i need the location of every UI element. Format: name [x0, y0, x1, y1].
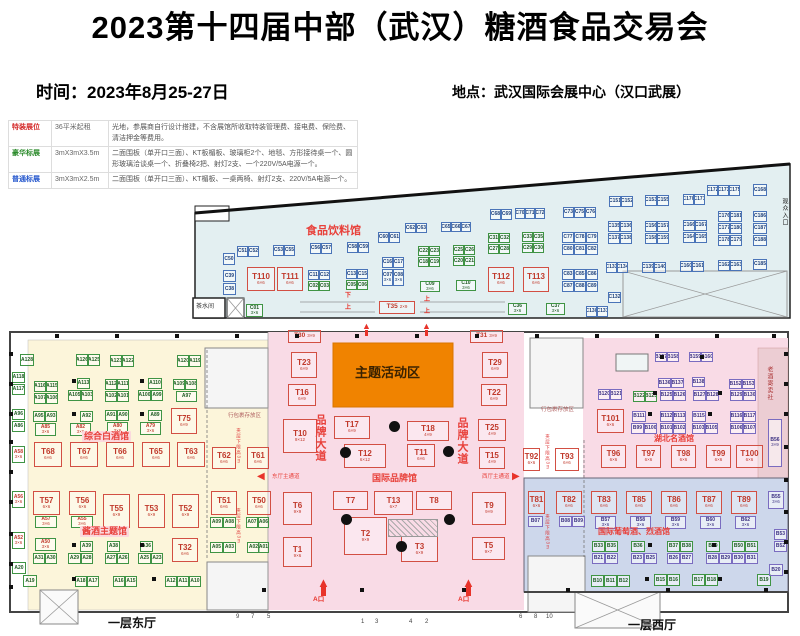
booth-id: C03: [320, 284, 329, 289]
booth-id: C65: [441, 225, 450, 230]
booth-C05: C05: [346, 280, 357, 290]
booth-size: 3×6: [395, 278, 403, 283]
booth-A102: A102: [105, 391, 117, 402]
booth-id: A15: [126, 579, 135, 584]
booth-A91: A91: [105, 410, 117, 421]
booth-id: C89: [587, 284, 596, 289]
zone: [616, 354, 648, 371]
booth-id: C85: [575, 272, 584, 277]
booth-id: A116: [34, 384, 46, 389]
booth-B35: B35: [605, 541, 618, 552]
pillar: [262, 588, 266, 592]
column-pillar: [443, 446, 454, 457]
pillar: [9, 440, 13, 444]
booth-C23: C23: [429, 246, 440, 256]
booth-A113: A113: [77, 378, 90, 389]
booth-id: C56: [311, 246, 320, 251]
booth-C173: C173: [718, 185, 729, 196]
booth-C138: C138: [620, 233, 632, 244]
booth-T97: T976×6: [636, 445, 661, 468]
pillar: [9, 470, 13, 474]
booth-T67: T676×6: [70, 442, 98, 467]
booth-id: C162: [718, 263, 730, 268]
booth-id: A90: [118, 413, 127, 418]
booth-id: B51: [747, 544, 756, 549]
booth-B102: B102: [673, 423, 686, 434]
booth-C165: C165: [695, 232, 707, 243]
booth-C69: C69: [501, 209, 512, 220]
booth-A122: A122: [122, 355, 134, 367]
booth-id: A103: [81, 393, 93, 398]
booth-C19: C19: [429, 257, 440, 267]
plan-label: 老酒寄卖社: [766, 366, 772, 401]
booth-A107: A107: [34, 393, 46, 404]
booth-C136: C136: [620, 221, 632, 232]
booth-B56: B563×9: [768, 419, 782, 467]
booth-id: C71: [525, 211, 534, 216]
booth-A95: A95: [33, 411, 45, 422]
booth-size: 6×6: [181, 552, 189, 557]
booth-id: A110: [149, 381, 161, 386]
column-pillar: [389, 421, 400, 432]
booth-size: 3×6: [15, 541, 23, 546]
pillar: [152, 577, 156, 581]
booth-id: C82: [587, 247, 596, 252]
booth-B101: B101: [660, 423, 673, 434]
pillar: [645, 577, 649, 581]
booth-id: C38: [225, 287, 234, 292]
booth-id: C73: [564, 210, 573, 215]
booth-id: C175: [729, 188, 740, 193]
booth-id: C05: [347, 283, 356, 288]
booth-B152: B152: [729, 379, 742, 389]
booth-T66: T666×6: [106, 442, 134, 467]
booth-B117: B117: [743, 411, 756, 422]
booth-id: C173: [718, 188, 729, 193]
booth-B62: B623×6: [735, 516, 756, 529]
booth-C58: C58: [347, 242, 358, 253]
booth-A57: A573×6: [35, 516, 57, 528]
booth-id: C19: [430, 260, 439, 265]
booth-id: A95: [34, 414, 43, 419]
booth-A100: A100: [138, 390, 151, 401]
booth-C185: C185: [753, 259, 767, 270]
booth-id: C77: [563, 235, 572, 240]
booth-A106: A106: [46, 393, 58, 404]
booth-id: C57: [322, 246, 331, 251]
booth-T96: T966×6: [601, 445, 626, 468]
booth-id: B10: [593, 579, 602, 584]
booth-C76: C76: [585, 207, 596, 218]
booth-size: 3×9: [771, 443, 779, 448]
zone: [205, 348, 268, 408]
booth-id: C22: [419, 249, 428, 254]
booth-T85: T856×6: [626, 491, 652, 514]
booth-id: A125: [88, 358, 100, 363]
pillar: [140, 543, 144, 547]
booth-size: 6×6: [497, 281, 505, 286]
booth-A86: A86: [12, 421, 25, 432]
booth-size: 3×6: [251, 311, 259, 316]
booth-id: C158: [645, 236, 657, 241]
booth-id: A03: [225, 545, 234, 550]
pillar: [9, 382, 13, 386]
booth-C86: C86: [586, 269, 598, 280]
booth-size: 6×6: [187, 456, 195, 461]
booth-id: C186: [754, 214, 766, 219]
booth-id: B121: [610, 392, 622, 397]
booth-id: C157: [657, 224, 669, 229]
booth-B121: B121: [610, 389, 622, 400]
booth-id: C28: [500, 247, 509, 252]
booth-T62: T626×6: [212, 447, 236, 469]
pillar: [784, 540, 788, 544]
booth-T11: T116×6: [407, 444, 435, 467]
booth-id: A100: [139, 393, 151, 398]
booth-id: C177: [718, 226, 730, 231]
booth-id: A10: [190, 579, 199, 584]
pillar: [140, 379, 144, 383]
booth-C163: C163: [730, 260, 742, 271]
booth-size: 6×9: [180, 423, 188, 428]
booth-id: C176: [718, 214, 730, 219]
booth-size: 3×6: [772, 500, 780, 505]
booth-id: C23: [430, 249, 439, 254]
booth-id: C178: [718, 238, 730, 243]
booth-B105: B105: [705, 423, 718, 434]
plan-label: 食品饮料馆: [306, 226, 361, 237]
booth-C32: C32: [499, 233, 510, 243]
booth-B29: B29: [719, 553, 732, 564]
booth-C07: C073×6: [382, 269, 393, 286]
booth-C159: C159: [657, 233, 669, 244]
booth-id: C76: [586, 210, 595, 215]
pillar: [772, 334, 776, 338]
booth-C62: C62: [405, 223, 416, 233]
plan-label: 10: [546, 614, 553, 620]
booth-id: C18: [419, 260, 428, 265]
booth-id: A23: [152, 556, 161, 561]
booth-size: 6×12: [360, 458, 370, 463]
booth-id: B35: [607, 544, 616, 549]
booth-size: 3×6: [707, 523, 715, 528]
booth-C135: C135: [608, 221, 620, 232]
plan-label: A口: [313, 597, 324, 604]
booth-id: C67: [461, 225, 470, 230]
booth-id: A105: [69, 393, 81, 398]
booth-B129: B129: [730, 390, 743, 401]
booth-B37: B37: [667, 541, 680, 552]
booth-size: 6×9: [113, 513, 121, 518]
booth-id: T35: [387, 304, 398, 311]
booth-size: 6×6: [152, 456, 160, 461]
plan-label: 茶水间: [196, 304, 214, 310]
booth-B137: B137: [671, 378, 684, 388]
booth-A38: A38: [107, 541, 120, 552]
booth-id: C33: [523, 235, 532, 240]
booth-size: 6×6: [645, 458, 653, 463]
booth-C52: C52: [248, 246, 259, 257]
plan-label: 综合白酒馆: [82, 431, 131, 442]
plan-label: 夹层下限高3m: [236, 428, 241, 464]
direction-arrow-stem: [321, 587, 325, 596]
booth-T65: T656×6: [142, 442, 170, 467]
booth-size: 9×7: [485, 550, 493, 555]
booth-A03: A03: [223, 542, 236, 553]
booth-id: C140: [654, 265, 666, 270]
booth-C11: C11: [308, 270, 319, 280]
booth-A119: A119: [189, 355, 201, 367]
pillar: [9, 585, 13, 589]
booth-id: C138: [620, 236, 632, 241]
booth-id: A30: [46, 556, 55, 561]
booth-id: C11: [309, 273, 318, 278]
booth-C63: C63: [416, 223, 427, 233]
pillar: [708, 412, 712, 416]
booth-id: C187: [754, 226, 766, 231]
booth-id: A97: [182, 394, 191, 399]
booth-A11: A11: [177, 576, 189, 587]
booth-size: 6×9: [348, 429, 356, 434]
booth-size: 6×9: [491, 367, 499, 372]
booth-C153: C153: [645, 195, 657, 206]
booth-A06: A06: [258, 517, 269, 528]
booth-C31: C31: [488, 233, 499, 243]
booth-size: 6×6: [220, 505, 228, 510]
booth-size: 4×9: [488, 460, 496, 465]
booth-size: 9×6: [294, 554, 302, 559]
booth-size: 6×6: [44, 456, 52, 461]
booth-id: C53: [274, 248, 283, 253]
booth-C83: C83: [562, 269, 574, 280]
booth-B115: B115: [692, 411, 706, 422]
booth-id: A113: [78, 381, 90, 386]
booth-B21: B21: [592, 553, 605, 564]
booth-C156: C156: [645, 221, 657, 232]
booth-id: A29: [70, 556, 79, 561]
booth-id: C168: [754, 188, 766, 193]
booth-C170: C170: [683, 194, 694, 205]
booth-B99: B99: [631, 423, 644, 434]
booth-id: B102: [674, 426, 686, 431]
booth-size: 6×6: [715, 458, 723, 463]
booth-C02: C02: [308, 281, 319, 291]
plan-label: 国际葡萄酒、烈酒馆: [598, 528, 670, 536]
booth-id: B53: [776, 532, 785, 537]
pillar: [648, 412, 652, 416]
booth-id: B101: [661, 426, 673, 431]
booth-size: 6×6: [80, 456, 88, 461]
booth-B28: B28: [706, 553, 719, 564]
booth-C16: C16: [382, 257, 393, 268]
booth-C17: C17: [393, 257, 404, 268]
booth-id: C132: [609, 295, 621, 300]
direction-arrow-right: ▶: [512, 472, 520, 482]
booth-id: B12: [619, 579, 628, 584]
booth-size: 9×12: [295, 438, 305, 443]
booth-id: C86: [587, 272, 596, 277]
booth-id: C69: [502, 212, 511, 217]
booth-id: B21: [594, 556, 603, 561]
booth-A105: A105: [68, 390, 81, 401]
booth-size: 6×6: [670, 504, 678, 509]
booth-C57: C57: [321, 243, 332, 254]
booth-id: C78: [575, 235, 584, 240]
booth-id: B158: [667, 355, 679, 360]
booth-id: B137: [672, 381, 684, 386]
booth-C22: C22: [418, 246, 429, 256]
booth-C186: C186: [753, 211, 767, 222]
booth-C39: C39: [223, 270, 236, 282]
booth-T6: T69×9: [283, 492, 312, 525]
booth-B126: B126: [673, 390, 686, 401]
booth-id: C79: [587, 235, 596, 240]
booth-C51: C51: [237, 246, 248, 257]
booth-id: C27: [489, 247, 498, 252]
booth-B125: B125: [660, 390, 673, 401]
plan-label: 下: [345, 293, 351, 299]
booth-B107: B107: [743, 423, 756, 434]
booth-size: 9×9: [362, 538, 370, 543]
booth-C85: C85: [574, 269, 586, 280]
booth-id: A11: [179, 579, 188, 584]
booth-size: 6×6: [607, 423, 615, 428]
booth-A01: A01: [258, 542, 269, 553]
booth-id: C26: [465, 248, 474, 253]
booth-B33: B33: [592, 541, 605, 552]
booth-A126: A126: [76, 354, 88, 366]
booth-C25: C25: [453, 245, 464, 255]
booth-B15: B15: [654, 574, 667, 586]
plan-label: 6: [519, 614, 522, 620]
booth-id: B111: [633, 414, 644, 419]
booth-id: A118: [13, 375, 25, 380]
booth-T50: T506×6: [247, 491, 271, 515]
booth-id: A89: [150, 413, 159, 418]
pillar: [295, 334, 299, 338]
booth-id: C152: [621, 199, 633, 204]
booth-id: A06: [259, 520, 268, 525]
booth-size: 6×9: [182, 513, 190, 518]
booth-id: A119: [189, 359, 201, 364]
pillar: [655, 334, 659, 338]
booth-id: C72: [535, 211, 544, 216]
booth-id: A25: [140, 556, 149, 561]
booth-id: A31: [34, 556, 43, 561]
booth-C72: C72: [535, 208, 545, 219]
booth-B112: B112: [660, 411, 673, 422]
booth-B120: B120: [598, 389, 610, 400]
booth-A15: A15: [125, 576, 137, 587]
booth-id: A109: [173, 382, 185, 387]
booth-id: A38: [109, 544, 118, 549]
pillar: [595, 334, 599, 338]
booth-A90: A90: [117, 410, 129, 421]
booth-C180: C180: [730, 223, 742, 234]
booth-id: C181: [730, 214, 742, 219]
plan-label: 2: [425, 619, 428, 625]
booth-size: 6×6: [257, 281, 265, 286]
booth-C140: C140: [654, 262, 666, 273]
booth-id: C61: [390, 235, 399, 240]
booth-id: B11: [606, 579, 615, 584]
booth-id: C155: [657, 198, 669, 203]
booth-T8: T8: [416, 491, 452, 510]
booth-B25: B25: [644, 553, 657, 564]
booth-T113: T1136×6: [523, 267, 549, 292]
booth-size: 6×6: [746, 458, 754, 463]
plan-label: 酱酒主题馆: [80, 526, 129, 537]
booth-C80: C80: [562, 244, 574, 255]
booth-C12: C12: [319, 270, 330, 280]
plan-label: 品牌大道: [314, 414, 325, 462]
zone: [530, 338, 583, 408]
booth-C177: C177: [718, 223, 730, 234]
booth-A31: A31: [33, 553, 45, 564]
booth-B12: B12: [617, 575, 630, 587]
booth-B116: B116: [730, 411, 743, 422]
booth-B23: B23: [631, 553, 644, 564]
booth-T63: T636×6: [177, 442, 205, 467]
booth-id: B153: [743, 382, 755, 387]
booth-id: C55: [285, 248, 294, 253]
booth-A29: A29: [68, 553, 81, 564]
booth-id: A91: [106, 413, 115, 418]
booth-C181: C181: [730, 211, 742, 222]
booth-size: 3×9: [489, 334, 497, 339]
booth-id: A17: [88, 579, 97, 584]
booth-T83: T836×6: [591, 491, 617, 514]
booth-id: B18: [707, 578, 716, 583]
booth-id: B29: [721, 556, 730, 561]
booth-id: A86: [14, 424, 23, 429]
booth-id: A99: [152, 393, 161, 398]
booth-A92: A92: [80, 411, 93, 422]
booth-T55: T556×9: [103, 494, 130, 528]
booth-id: A12: [166, 579, 175, 584]
booth-id: B125: [661, 393, 673, 398]
booth-size: 3×6: [42, 430, 50, 435]
booth-id: C02: [309, 284, 318, 289]
booth-T29: T296×9: [482, 352, 508, 378]
zone: [207, 562, 268, 610]
booth-B09: B09: [572, 516, 585, 527]
pillar: [784, 510, 788, 514]
booth-A16: A16: [113, 576, 125, 587]
booth-id: B20: [771, 568, 780, 573]
booth-A23: A23: [151, 553, 163, 564]
booth-A09: A09: [210, 517, 223, 528]
booth-A120: A120: [177, 355, 189, 367]
direction-arrow-left: ◀: [257, 472, 265, 482]
booth-C29: C29: [522, 243, 533, 253]
booth-A79: A793×6: [140, 422, 161, 435]
plan-label: 夹层下限高3m: [545, 434, 550, 470]
plan-label: 主题活动区: [355, 366, 420, 379]
booth-C139: C139: [642, 262, 654, 273]
booth-id: C139: [642, 265, 654, 270]
plan-label: 7: [251, 614, 254, 620]
booth-B106: B106: [730, 423, 743, 434]
booth-id: A108: [185, 382, 197, 387]
booth-id: C167: [695, 223, 707, 228]
booth-id: A19: [25, 579, 34, 584]
booth-A27: A27: [105, 553, 117, 564]
booth-id: A122: [122, 359, 134, 364]
booth-id: T7: [346, 497, 355, 505]
plan-label: 行包裹存放区: [541, 408, 574, 414]
booth-id: C134: [617, 265, 628, 270]
